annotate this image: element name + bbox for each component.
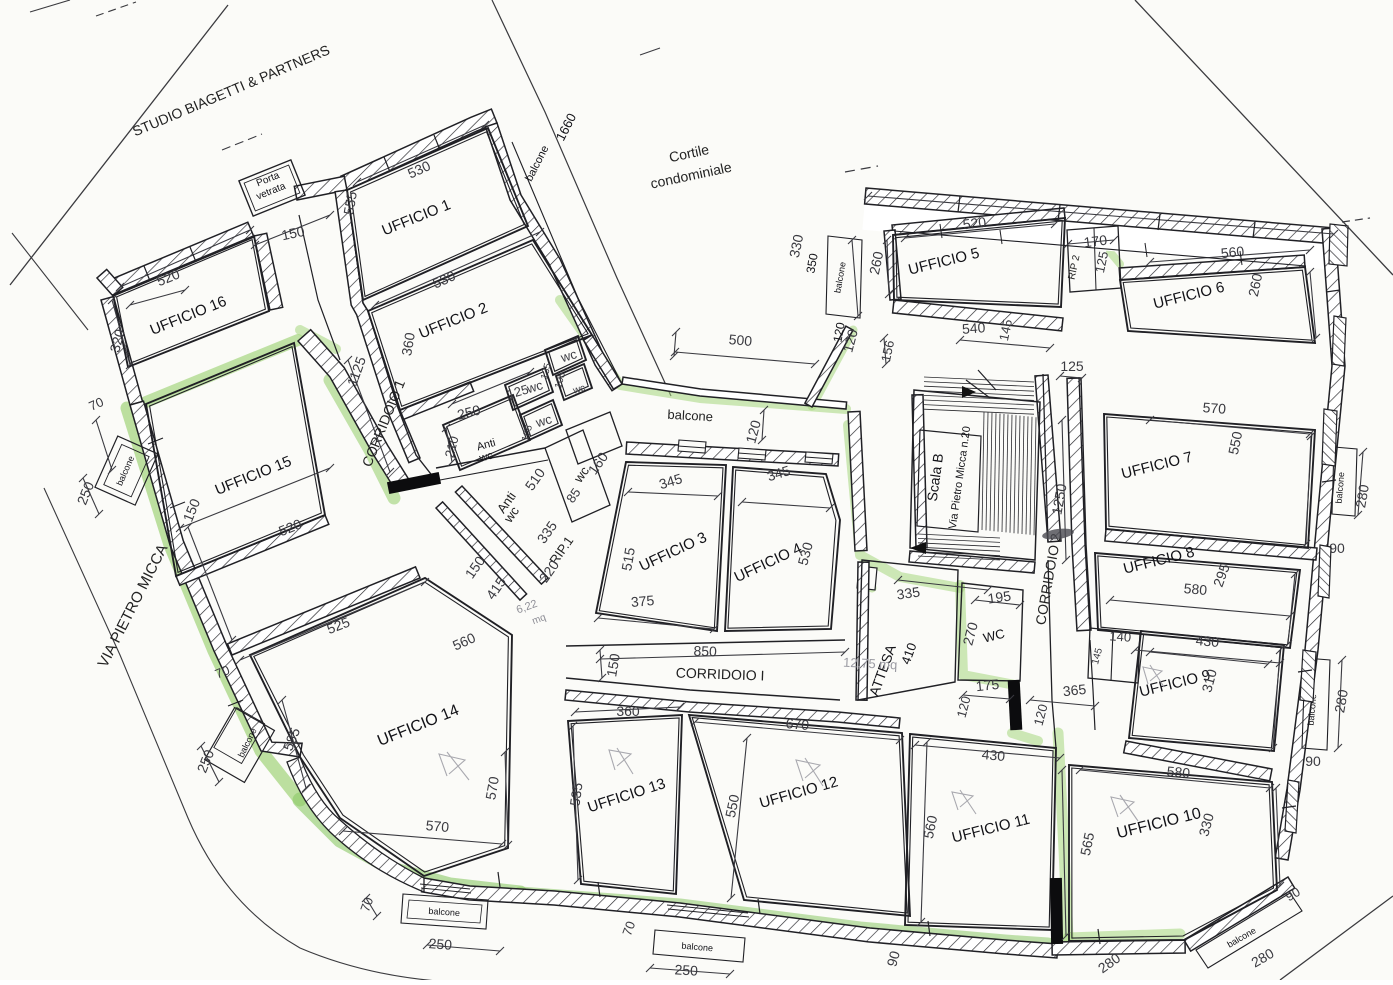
svg-text:520: 520 (962, 214, 987, 233)
svg-text:570: 570 (1202, 399, 1227, 417)
svg-text:540: 540 (961, 319, 986, 337)
svg-text:250: 250 (428, 935, 453, 953)
svg-text:125: 125 (1060, 358, 1084, 374)
svg-text:430: 430 (1195, 632, 1220, 650)
svg-text:430: 430 (981, 746, 1006, 764)
svg-text:175: 175 (975, 676, 1000, 694)
svg-text:570: 570 (425, 817, 450, 835)
svg-text:365: 365 (1062, 681, 1087, 699)
svg-text:500: 500 (728, 331, 753, 349)
svg-text:90: 90 (1329, 540, 1345, 556)
svg-text:140: 140 (1109, 628, 1132, 644)
svg-text:90: 90 (1305, 753, 1321, 769)
svg-text:CORRIDOIO I: CORRIDOIO I (676, 664, 765, 683)
svg-text:balcone: balcone (667, 407, 713, 424)
svg-text:360: 360 (616, 703, 640, 719)
svg-text:580: 580 (1183, 580, 1208, 598)
svg-text:335: 335 (896, 583, 922, 602)
svg-text:535: 535 (567, 781, 586, 807)
svg-text:12,75 mq: 12,75 mq (843, 655, 898, 673)
svg-text:850: 850 (693, 643, 717, 660)
svg-text:375: 375 (630, 592, 655, 610)
